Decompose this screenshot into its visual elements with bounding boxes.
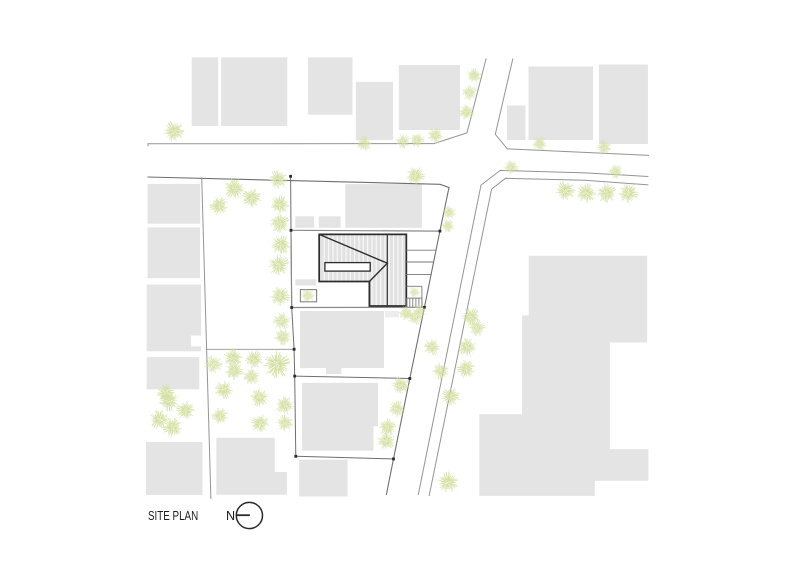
- svg-text:SITE PLAN: SITE PLAN: [148, 509, 198, 523]
- svg-text:N: N: [226, 509, 235, 523]
